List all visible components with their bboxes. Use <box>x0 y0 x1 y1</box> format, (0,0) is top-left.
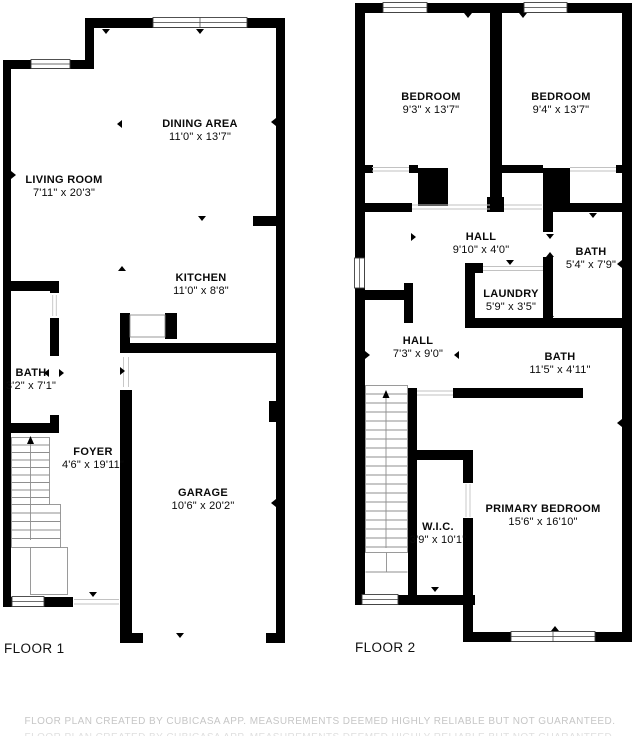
room-dims: 3'9" x 10'1" <box>410 534 467 547</box>
room-dims: 9'10" x 4'0" <box>453 244 510 257</box>
room-name: BEDROOM <box>531 91 591 104</box>
room-name: BATH <box>6 367 56 380</box>
room-label-kitchen: KITCHEN 11'0" x 8'8" <box>173 272 229 298</box>
room-dims: 5'4" x 7'9" <box>566 259 616 272</box>
room-name: HALL <box>453 231 510 244</box>
room-dims: 11'0" x 13'7" <box>162 131 238 144</box>
room-dims: 5'9" x 3'5" <box>483 301 538 314</box>
room-dims: 7'11" x 20'3" <box>25 187 102 200</box>
room-name: KITCHEN <box>173 272 229 285</box>
floor2-stairs <box>366 386 408 573</box>
room-name: HALL <box>393 335 443 348</box>
room-name: W.I.C. <box>410 521 467 534</box>
room-dims: 15'6" x 16'10" <box>485 516 600 529</box>
room-label-foyer: FOYER 4'6" x 19'11" <box>62 446 124 472</box>
room-name: BATH <box>566 246 616 259</box>
room-label-bedroom-right: BEDROOM 9'4" x 13'7" <box>531 91 591 117</box>
floorplan-page: LIVING ROOM 7'11" x 20'3" DINING AREA 11… <box>0 0 640 736</box>
room-label-garage: GARAGE 10'6" x 20'2" <box>172 487 235 513</box>
room-dims: 11'0" x 8'8" <box>173 285 229 298</box>
room-label-hall-lower: HALL 7'3" x 9'0" <box>393 335 443 361</box>
room-name: LAUNDRY <box>483 288 538 301</box>
room-label-living-room: LIVING ROOM 7'11" x 20'3" <box>25 174 102 200</box>
room-dims: 9'3" x 13'7" <box>401 104 461 117</box>
room-label-hall-upper: HALL 9'10" x 4'0" <box>453 231 510 257</box>
room-dims: 4'6" x 19'11" <box>62 459 124 472</box>
room-dims: 7'3" x 9'0" <box>393 348 443 361</box>
room-name: PRIMARY BEDROOM <box>485 503 600 516</box>
floor2-title: FLOOR 2 <box>355 640 416 656</box>
room-name: FOYER <box>62 446 124 459</box>
room-dims: 11'5" x 4'11" <box>529 364 590 377</box>
room-dims: 10'6" x 20'2" <box>172 500 235 513</box>
room-label-bath-upper: BATH 5'4" x 7'9" <box>566 246 616 272</box>
footer-disclaimer-clipped: FLOOR PLAN CREATED BY CUBICASA APP. MEAS… <box>0 732 640 736</box>
room-label-laundry: LAUNDRY 5'9" x 3'5" <box>483 288 538 314</box>
room-name: DINING AREA <box>162 118 238 131</box>
room-label-bath-lower: BATH 11'5" x 4'11" <box>529 351 590 377</box>
room-dims: 9'4" x 13'7" <box>531 104 591 117</box>
room-name: LIVING ROOM <box>25 174 102 187</box>
room-name: BEDROOM <box>401 91 461 104</box>
room-name: GARAGE <box>172 487 235 500</box>
footer-disclaimer: FLOOR PLAN CREATED BY CUBICASA APP. MEAS… <box>0 716 640 728</box>
floor1-plan <box>3 18 285 644</box>
room-label-dining-area: DINING AREA 11'0" x 13'7" <box>162 118 238 144</box>
room-label-bedroom-left: BEDROOM 9'3" x 13'7" <box>401 91 461 117</box>
floor1-title: FLOOR 1 <box>4 641 65 657</box>
floor1-stairs <box>12 436 68 595</box>
room-name: BATH <box>529 351 590 364</box>
room-dims: 3'2" x 7'1" <box>6 380 56 393</box>
room-label-bath-floor1: BATH 3'2" x 7'1" <box>6 367 56 393</box>
room-label-wic: W.I.C. 3'9" x 10'1" <box>410 521 467 547</box>
room-label-primary-bedroom: PRIMARY BEDROOM 15'6" x 16'10" <box>485 503 600 529</box>
